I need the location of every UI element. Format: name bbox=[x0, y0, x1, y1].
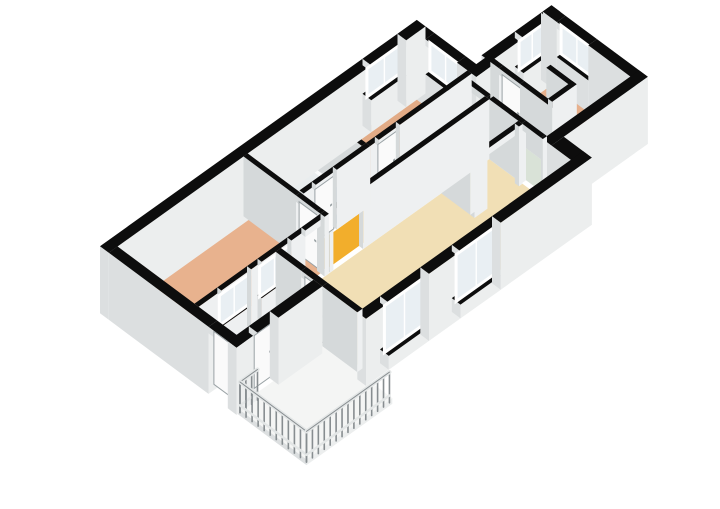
window-mullion bbox=[576, 37, 577, 67]
window-mullion bbox=[476, 240, 477, 288]
window-mullion bbox=[404, 291, 405, 339]
window-mullion bbox=[274, 256, 275, 287]
window-mullion bbox=[384, 56, 385, 86]
window-mullion bbox=[532, 31, 534, 61]
floorplan-stage bbox=[0, 0, 720, 509]
window-mullion bbox=[234, 284, 235, 315]
window-mullion bbox=[445, 54, 446, 84]
floorplan-3d-rendering bbox=[0, 0, 720, 509]
